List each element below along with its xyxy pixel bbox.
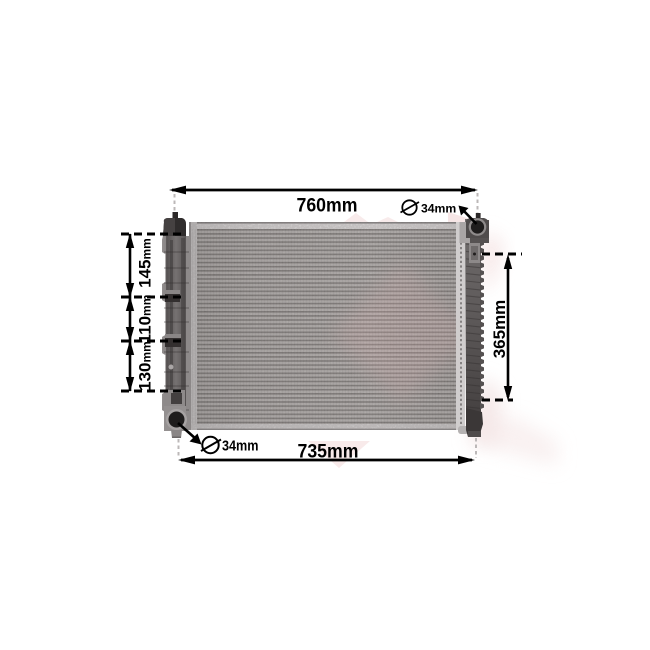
svg-text:34mm: 34mm	[421, 202, 456, 216]
svg-text:735mm: 735mm	[298, 442, 359, 463]
svg-text:34mm: 34mm	[222, 438, 259, 455]
svg-text:760mm: 760mm	[297, 196, 358, 217]
svg-text:365mm: 365mm	[490, 300, 509, 359]
